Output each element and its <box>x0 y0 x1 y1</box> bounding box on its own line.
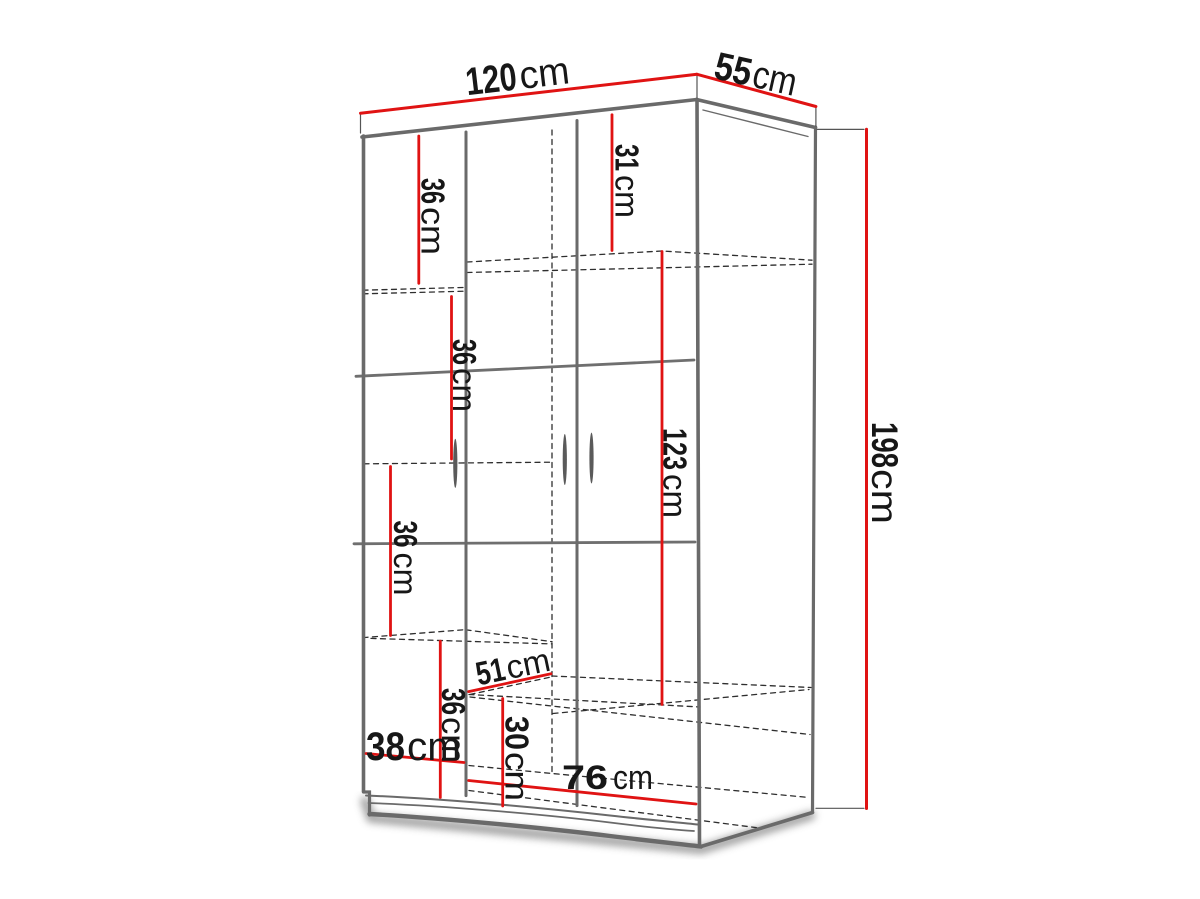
svg-text:cm: cm <box>613 759 653 797</box>
svg-text:123: 123 <box>657 428 694 470</box>
svg-text:76: 76 <box>562 759 608 797</box>
svg-text:51: 51 <box>472 650 508 692</box>
svg-text:cm: cm <box>657 474 694 518</box>
svg-text:36: 36 <box>446 339 483 365</box>
svg-text:cm: cm <box>864 469 905 524</box>
svg-text:cm: cm <box>499 752 536 801</box>
svg-text:31: 31 <box>609 144 646 171</box>
svg-text:cm: cm <box>446 368 483 412</box>
svg-text:38: 38 <box>366 725 405 769</box>
svg-text:36: 36 <box>435 688 472 715</box>
svg-text:cm: cm <box>609 175 646 218</box>
svg-text:120: 120 <box>463 56 519 105</box>
svg-text:36: 36 <box>387 521 424 548</box>
svg-text:36: 36 <box>415 178 452 204</box>
svg-text:cm: cm <box>387 553 424 596</box>
svg-text:cm: cm <box>503 641 554 686</box>
svg-text:cm: cm <box>749 53 801 105</box>
svg-text:30: 30 <box>499 716 536 750</box>
svg-text:cm: cm <box>407 725 461 769</box>
svg-text:cm: cm <box>517 49 572 98</box>
svg-text:cm: cm <box>415 207 452 255</box>
svg-text:198: 198 <box>864 422 905 468</box>
